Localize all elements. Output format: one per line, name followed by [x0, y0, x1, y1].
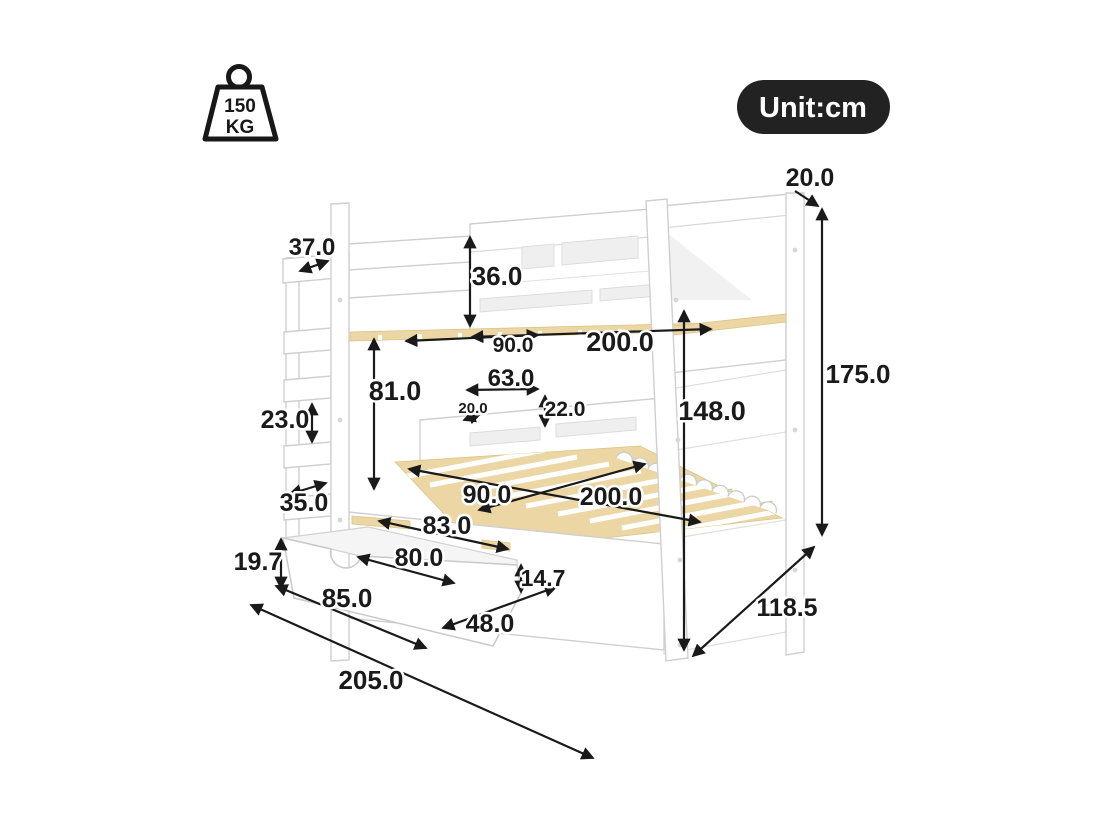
far-right-post: [786, 193, 804, 655]
ladder-rung: [284, 442, 331, 468]
dim-label-bottom-bunk-height: 148.0: [678, 396, 746, 426]
dim-label-ladder-top-depth: 37.0: [289, 234, 336, 261]
dim-label-bottom-bunk-length: 200.0: [580, 483, 643, 511]
ladder-rung: [284, 328, 331, 354]
dim-label-overall-depth: 118.5: [756, 594, 817, 622]
diagram-canvas: 20.0 37.0 36.0 90.0 200.0 81.0 63.0 22.0…: [0, 0, 1100, 824]
dim-label-top-guardrail-height: 36.0: [472, 261, 523, 291]
dim-label-shelf-depth: 20.0: [458, 400, 487, 417]
weight-value: 150: [224, 96, 256, 117]
top-guard-rail: [348, 236, 470, 338]
dim-label-drawer-front-length: 85.0: [322, 583, 373, 613]
dim-label-drawer-opening-width: 80.0: [395, 544, 444, 572]
dim-label-bottom-bunk-width: 90.0: [463, 481, 512, 509]
dim-label-ladder-base-depth: 35.0: [280, 489, 329, 517]
dim-label-drawer-opening-top: 83.0: [423, 512, 472, 540]
ladder-rung: [284, 376, 331, 402]
dim-label-rung-spacing: 23.0: [261, 406, 310, 434]
top-headboard: [662, 194, 790, 330]
dim-label-shelf-length: 63.0: [488, 365, 535, 392]
dim-label-drawer-depth: 48.0: [466, 610, 515, 638]
dim-label-overall-length: 205.0: [338, 665, 403, 695]
weight-unit: KG: [226, 117, 255, 138]
product-dimension-diagram: 20.0 37.0 36.0 90.0 200.0 81.0 63.0 22.0…: [0, 0, 1100, 824]
dim-label-overall-height: 175.0: [825, 359, 890, 389]
dim-label-headboard-top-rail: 20.0: [786, 164, 835, 192]
dim-label-drawer-side-height: 14.7: [521, 565, 566, 591]
dim-label-bunk-clearance: 81.0: [369, 376, 422, 406]
dim-label-shelf-height: 22.0: [545, 398, 586, 421]
weight-capacity-icon: 150 KG: [205, 67, 276, 140]
unit-badge: Unit:cm: [737, 80, 890, 134]
unit-badge-label: Unit:cm: [759, 92, 867, 124]
dim-label-top-bunk-length: 200.0: [586, 327, 654, 357]
dim-label-drawer-front-height: 19.7: [234, 548, 283, 576]
dim-label-top-bunk-width: 90.0: [493, 334, 534, 357]
